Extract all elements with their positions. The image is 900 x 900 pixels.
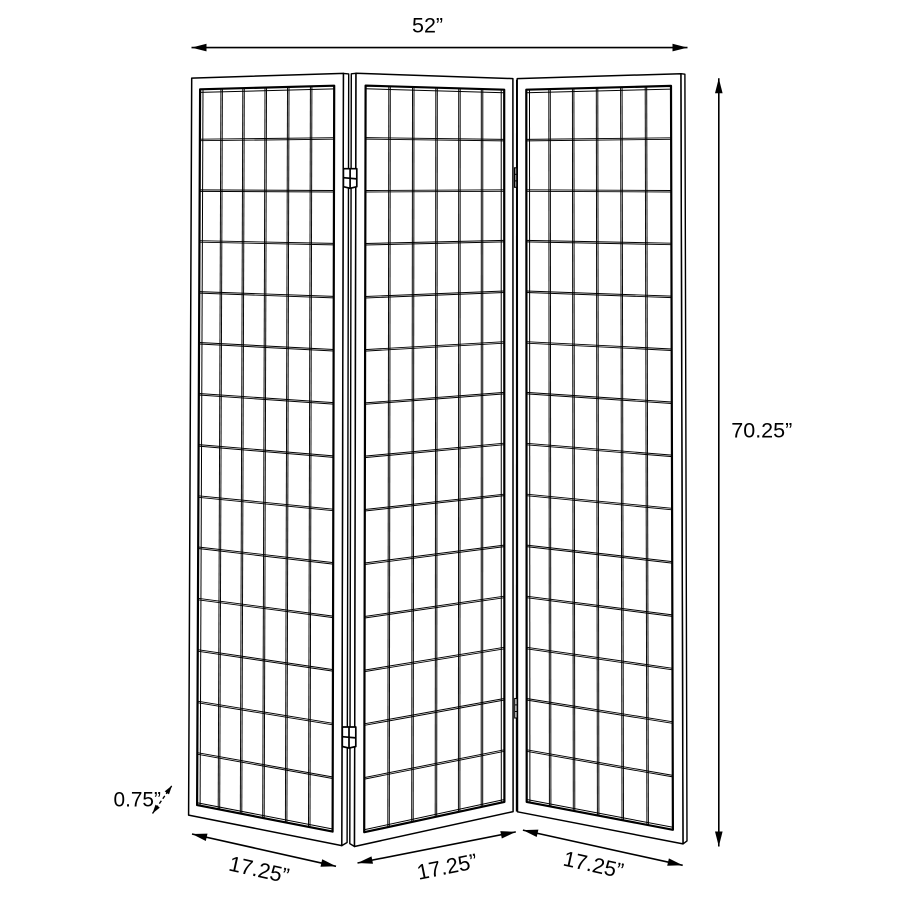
- svg-text:70.25”: 70.25”: [731, 419, 792, 443]
- svg-text:52”: 52”: [412, 14, 443, 38]
- svg-text:0.75”: 0.75”: [114, 788, 161, 811]
